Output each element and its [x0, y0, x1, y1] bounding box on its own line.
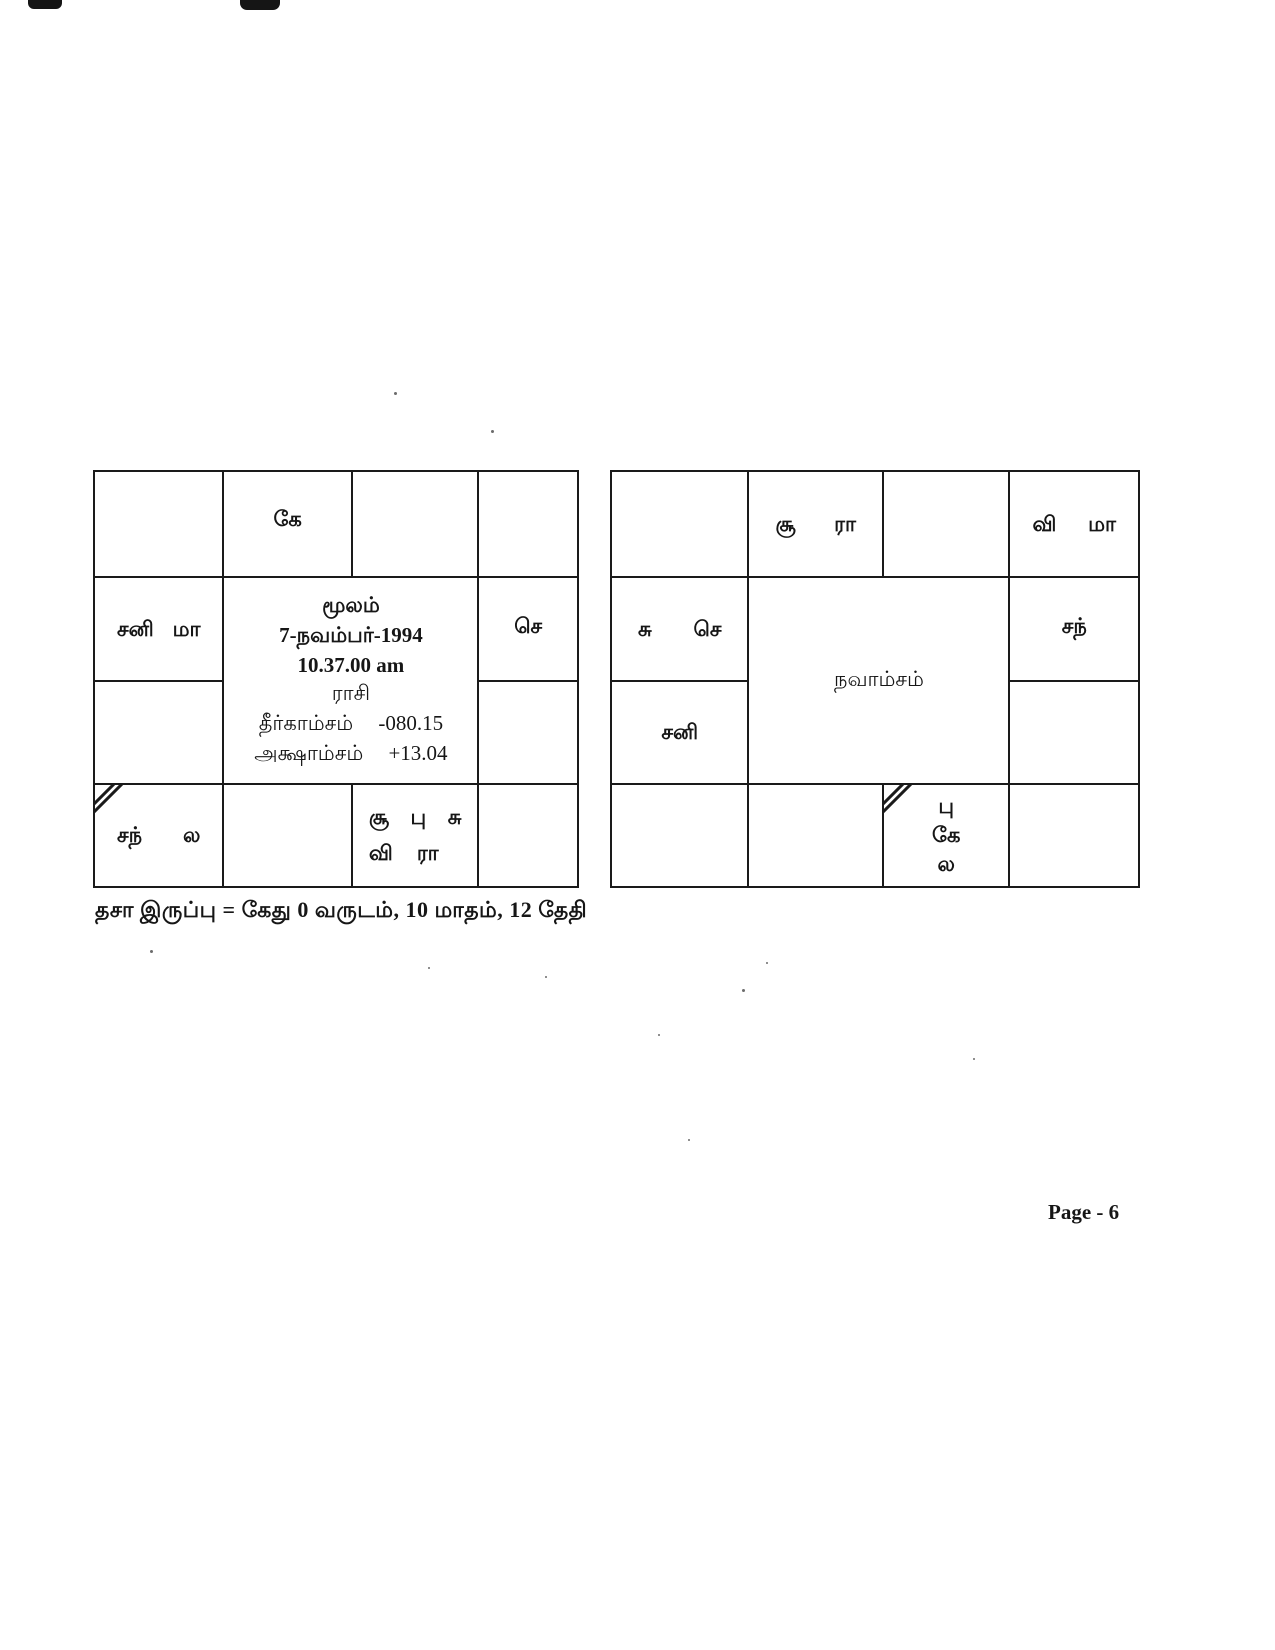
latitude-label: அக்ஷாம்சம் — [254, 741, 363, 765]
navamsam-house-mesham: சூ ரா — [748, 471, 883, 577]
longitude-value: -080.15 — [378, 711, 443, 736]
birth-time: 10.37.00 am — [298, 653, 405, 678]
rasi-house-thulam: சூ பு சு வி ரா — [352, 784, 478, 887]
navamsam-house-magaram: சனி — [611, 681, 748, 785]
planet-sevvai: செ — [514, 615, 542, 638]
planet-viyazhan: வி — [369, 842, 393, 865]
scan-smudge — [28, 0, 62, 9]
navamsam-chart: சூ ரா வி மா சு செ சந் நவாம்சம் சனி பு கே… — [610, 470, 1140, 888]
scan-speck — [491, 430, 494, 433]
scan-speck — [394, 392, 397, 395]
latitude-value: +13.04 — [388, 741, 447, 766]
planet-sani: சனி — [117, 618, 154, 641]
scan-speck — [545, 976, 547, 978]
scan-speck — [428, 967, 430, 969]
scan-speck — [742, 989, 745, 992]
rasi-house-rishabam — [352, 471, 478, 577]
chart-title-navamsam: நவாம்சம் — [834, 667, 924, 694]
planet-rahu: ரா — [417, 842, 439, 865]
longitude-label: தீர்காம்சம் — [259, 711, 353, 735]
rasi-house-mesham: கே — [223, 471, 351, 577]
thulam-planets-row1: சூ பு சு — [369, 806, 461, 829]
scan-speck — [658, 1034, 660, 1036]
planet-mandhi: மா — [1088, 513, 1116, 536]
planet-sevvai: செ — [693, 618, 721, 641]
scan-speck — [973, 1058, 975, 1060]
rasi-house-magaram — [94, 681, 223, 785]
latitude-row: அக்ஷாம்சம் +13.04 — [254, 741, 447, 768]
planet-ketu: கே — [274, 508, 302, 531]
navamsam-house-meenam — [611, 471, 748, 577]
navamsam-house-kumbam: சு செ — [611, 577, 748, 681]
rasi-house-mithunam — [478, 471, 578, 577]
navamsam-house-viruchigam — [748, 784, 883, 887]
page-number: Page - 6 — [1048, 1200, 1119, 1225]
rasi-house-viruchigam — [223, 784, 351, 887]
rasi-house-meenam — [94, 471, 223, 577]
rasi-center-details: மூலம் 7-நவம்பர்-1994 10.37.00 am ராசி தீ… — [223, 577, 478, 784]
scan-speck — [688, 1139, 690, 1141]
rasi-house-simmam — [478, 681, 578, 785]
scan-smudge — [240, 0, 280, 10]
planet-mandhi: மா — [173, 618, 201, 641]
planet-chandran: சந் — [1062, 615, 1087, 638]
planet-sukran: சு — [448, 806, 462, 829]
rasi-house-kanni — [478, 784, 578, 887]
navamsam-house-simmam — [1009, 681, 1139, 785]
longitude-row: தீர்காம்சம் -080.15 — [259, 711, 443, 738]
planet-suriyan: சூ — [369, 806, 389, 829]
planet-chandran: சந் — [117, 824, 142, 847]
navamsam-house-kanni — [1009, 784, 1139, 887]
rasi-house-dhanusu: சந் ல — [94, 784, 223, 887]
navamsam-house-rishabam — [883, 471, 1010, 577]
rasi-chart: கே சனி மா செ மூலம் 7-நவம்பர்-1994 10.37.… — [93, 470, 579, 888]
planet-sukran: சு — [638, 618, 652, 641]
birth-star: மூலம் — [322, 593, 380, 620]
lagna-marker-icon — [883, 784, 919, 820]
planet-rahu: ரா — [834, 513, 856, 536]
rasi-house-kumbam: சனி மா — [94, 577, 223, 681]
lagna-marker-icon — [94, 784, 130, 820]
planet-budhan: பு — [938, 795, 954, 818]
planet-budhan: பு — [411, 806, 427, 829]
navamsam-house-kadagam: சந் — [1009, 577, 1139, 681]
navamsam-house-dhanusu — [611, 784, 748, 887]
thulam-planets-row2: வி ரா — [369, 842, 461, 865]
lagnam-label: ல — [183, 824, 200, 847]
navamsam-house-mithunam: வி மா — [1009, 471, 1139, 577]
scan-speck — [766, 962, 768, 964]
dasa-balance-text: தசா இருப்பு = கேது 0 வருடம், 10 மாதம், 1… — [95, 897, 587, 926]
navamsam-house-thulam: பு கே ல — [883, 784, 1010, 887]
scan-speck — [150, 950, 153, 953]
planet-suriyan: சூ — [775, 513, 795, 536]
birth-date: 7-நவம்பர்-1994 — [279, 623, 423, 650]
planet-ketu: கே — [932, 824, 960, 847]
chart-title-rasi: ராசி — [332, 681, 370, 708]
planet-viyazhan: வி — [1032, 513, 1056, 536]
planet-sani: சனி — [661, 721, 698, 744]
navamsam-center: நவாம்சம் — [748, 577, 1009, 784]
rasi-house-kadagam: செ — [478, 577, 578, 681]
lagnam-label: ல — [938, 853, 955, 876]
